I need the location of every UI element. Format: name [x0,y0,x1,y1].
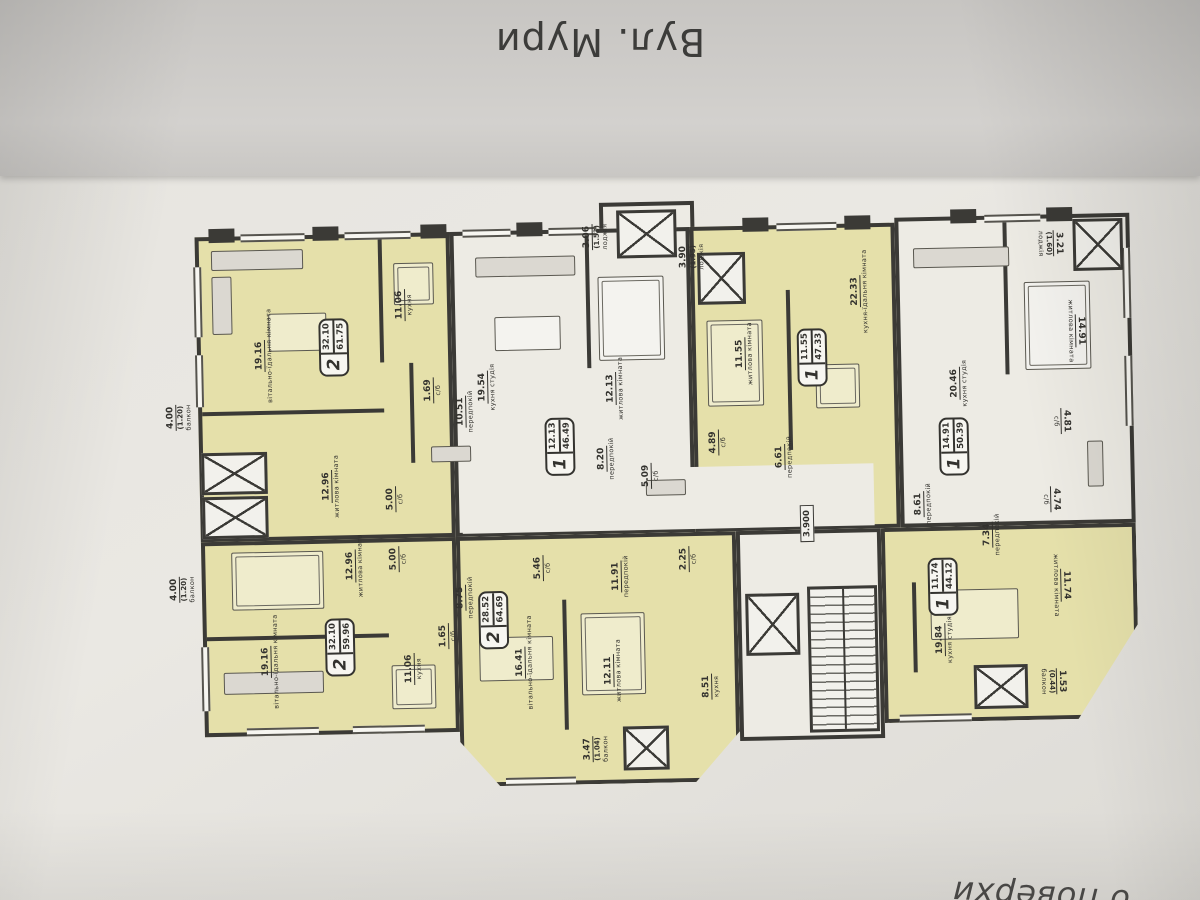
window [1124,356,1133,426]
room-label: 4.89с/б [708,429,728,456]
loggia-xbox-icon [1072,218,1123,271]
elevator-shaft-icon [745,593,800,656]
balcony-label: 3.47(1.04)балкон [582,736,610,763]
window [984,214,1040,223]
apartment-badge: 1 12.1346.49 [544,417,575,476]
apartment-badge: 1 14.9150.39 [938,417,969,476]
room-label: 5.00с/б [385,486,405,513]
wall-pier [844,215,870,230]
room-label: 4.74с/б [1041,486,1061,513]
window [900,713,972,723]
apartment-badge: 2 32.1059.96 [325,618,356,677]
room-label: 19.54кухня студія [477,364,498,411]
loggia-label: 3.21(1.60)лоджія [1036,230,1064,257]
bathtub-icon [1087,440,1104,486]
bottom-caption-fragment: о поверхи [951,873,1131,900]
room-label: 11.06кухня [404,652,424,685]
room-label: 12.13житлова кімната [605,357,626,420]
bathtub-icon [431,446,471,463]
room-label: 5.46с/б [532,555,552,582]
balcony-label: 1.53(0.44)балкон [1039,668,1067,695]
room-label: 16.41вітально-їдальня кімната [514,615,536,710]
wall-pier [208,229,234,244]
window [776,222,836,231]
balcony-label: 4.00(1.20)балкон [169,576,197,603]
floor-plan-photo: Вул. Мури [0,0,1200,900]
room-label: 19.16вітально-їдальня кімната [253,309,275,404]
bed-icon [231,551,324,611]
staircase-icon [807,585,880,732]
window [353,725,425,735]
apartment-badge: 2 28.5264.69 [478,591,509,650]
room-label: 19.16вітально-їдальня кімната [260,614,282,709]
window [462,229,510,238]
room-label: 11.55житлова кімната [734,322,755,385]
balcony-label: 4.00(1.20)балкон [165,404,193,431]
room-label: 12.96житлова кімната [321,455,342,518]
room-label: 2.25с/б [678,546,698,573]
window [193,267,202,337]
balcony-xbox-icon [623,726,670,771]
wall-pier [420,224,446,239]
room-label: 6.61передпокій [774,436,795,478]
room-label: 12.11житлова кімната [603,639,624,702]
balcony-xbox-icon [202,496,269,539]
window [344,231,410,240]
sofa-icon [211,249,303,271]
sofa-icon [913,246,1009,268]
apartment-badge: 1 11.5547.33 [797,328,828,387]
room-label: 5.09с/б [641,462,661,489]
room-label: 11.91передпокій [610,555,631,597]
window [201,647,210,711]
room-label: 12.96житлова кімната [344,534,365,597]
window [247,727,319,737]
room-label: 22.33кухня-їдальня кімната [849,249,871,333]
window [240,233,304,242]
balcony-xbox-icon [974,664,1029,709]
loggia-label: 3.06(1.53)лоджія [582,224,610,251]
room-label: 1.65с/б [438,623,458,650]
room-label: 5.00с/б [388,546,408,573]
bed-icon [597,276,665,361]
table-icon [494,316,561,351]
wall-pier [516,222,542,237]
window [1122,248,1131,318]
armchair-icon [211,277,232,335]
room-label: 8.20передпокій [596,437,617,479]
wall-pier [742,217,768,232]
window [195,355,204,407]
room-label: 10.51передпокій [455,390,476,432]
level-mark: 3.900 [800,505,815,542]
balcony-xbox-icon [201,452,268,495]
room-label: 11.74житлова кімната [1051,553,1072,616]
apartment-badge: 1 11.7444.12 [927,557,958,616]
room-label: 19.84кухня студія [934,616,955,663]
loggia-xbox-icon [616,209,677,258]
floor-plan: 3.900 2 32.1061.75 19.16вітально-їдальня… [144,188,1146,801]
room-label: 20.46кухня студія [949,360,970,407]
window [506,777,576,786]
room-label: 7.34передпокій [982,513,1003,555]
wall-pier [950,209,976,224]
street-name-label: Вул. Мури [430,20,770,64]
room-label: 14.91житлова кімната [1066,299,1087,362]
room-label: 4.81с/б [1051,408,1071,435]
room-label: 8.61передпокій [913,483,934,525]
room-label: 1.69с/б [423,377,443,404]
loggia-label: 3.90(1.95)лоджія [678,243,706,270]
apartment-badge: 2 32.1061.75 [318,318,349,377]
wall-pier [1046,207,1072,222]
room-label: 8.51кухня [701,673,721,700]
wall-pier [312,226,338,241]
room-label: 11.06кухня [394,288,414,321]
room-label: 8.75передпокій [455,576,476,618]
sofa-icon [475,255,575,277]
